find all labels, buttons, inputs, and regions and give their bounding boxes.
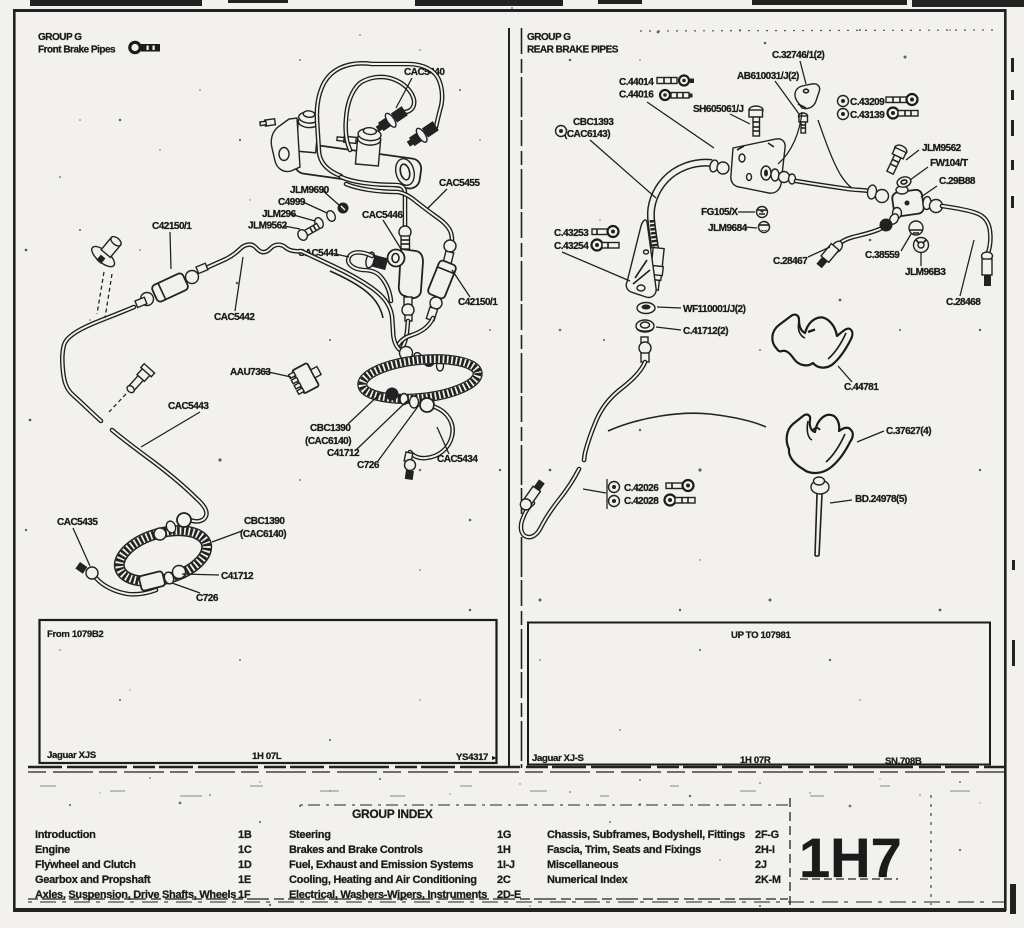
svg-text:Engine: Engine — [35, 844, 70, 856]
svg-text:Cooling, Heating and Air Condi: Cooling, Heating and Air Conditioning — [289, 874, 477, 886]
svg-text:1H 07R: 1H 07R — [740, 755, 771, 766]
svg-text:C.28467: C.28467 — [773, 256, 808, 267]
svg-text:2C: 2C — [497, 874, 511, 886]
svg-text:C42150/1: C42150/1 — [458, 297, 498, 308]
svg-text:Numerical Index: Numerical Index — [547, 874, 629, 886]
svg-text:1E: 1E — [238, 874, 251, 886]
svg-text:1H7: 1H7 — [799, 826, 902, 889]
svg-text:CBC1393: CBC1393 — [573, 117, 614, 128]
svg-text:2F-G: 2F-G — [755, 829, 779, 841]
svg-text:FG105/X: FG105/X — [701, 207, 738, 218]
svg-text:C.42028: C.42028 — [624, 496, 659, 507]
svg-text:CAC5434: CAC5434 — [437, 454, 478, 465]
svg-text:2H-I: 2H-I — [755, 844, 775, 856]
svg-text:2D-E: 2D-E — [497, 889, 521, 901]
svg-text:CAC5455: CAC5455 — [439, 178, 480, 189]
svg-text:Jaguar XJ-S: Jaguar XJ-S — [532, 753, 585, 764]
svg-text:Steering: Steering — [289, 829, 331, 841]
svg-text:From 1079B2: From 1079B2 — [47, 629, 103, 640]
svg-text:CBC1390: CBC1390 — [310, 423, 351, 434]
svg-text:Introduction: Introduction — [35, 829, 96, 841]
svg-text:C.44014: C.44014 — [619, 77, 654, 88]
svg-text:Chassis, Subframes, Bodyshell,: Chassis, Subframes, Bodyshell, Fittings — [547, 829, 745, 841]
svg-text:1F: 1F — [238, 889, 251, 901]
svg-text:C42150/1: C42150/1 — [152, 221, 192, 232]
svg-text:JLM96B3: JLM96B3 — [905, 267, 946, 278]
svg-text:SN.708B: SN.708B — [885, 756, 922, 767]
svg-text:Jaguar XJS: Jaguar XJS — [47, 750, 97, 761]
svg-text:C.44016: C.44016 — [619, 90, 654, 101]
svg-text:AB610031/J(2): AB610031/J(2) — [737, 71, 799, 82]
svg-text:C4999: C4999 — [278, 197, 306, 208]
svg-text:1C: 1C — [238, 844, 252, 856]
svg-text:GROUP INDEX: GROUP INDEX — [352, 807, 433, 821]
svg-text:C.43254: C.43254 — [554, 241, 589, 252]
svg-text:AAU7363: AAU7363 — [230, 367, 271, 378]
svg-text:Gearbox and Propshaft: Gearbox and Propshaft — [35, 874, 151, 886]
svg-text:C.43209: C.43209 — [850, 97, 885, 108]
svg-text:CAC5446: CAC5446 — [362, 210, 403, 221]
svg-text:FW104/T: FW104/T — [930, 158, 968, 169]
svg-text:C.43253: C.43253 — [554, 228, 589, 239]
svg-text:Electrical, Washers-Wipers, In: Electrical, Washers-Wipers, Instruments — [289, 889, 487, 901]
svg-text:JLM9684: JLM9684 — [708, 223, 748, 234]
svg-text:JLM9690: JLM9690 — [290, 185, 330, 196]
svg-text:2J: 2J — [755, 859, 767, 871]
svg-text:WF110001/J(2): WF110001/J(2) — [683, 304, 746, 315]
svg-text:JLM9562: JLM9562 — [922, 143, 962, 154]
svg-text:CAC5442: CAC5442 — [214, 312, 255, 323]
svg-text:C.43139: C.43139 — [850, 110, 885, 121]
svg-text:C726: C726 — [196, 593, 219, 604]
svg-text:Front Brake Pipes: Front Brake Pipes — [38, 45, 116, 56]
svg-text:C.28468: C.28468 — [946, 297, 981, 308]
svg-text:Fuel, Exhaust and Emission Sys: Fuel, Exhaust and Emission Systems — [289, 859, 473, 871]
svg-text:1G: 1G — [497, 829, 511, 841]
svg-text:C.37627(4): C.37627(4) — [886, 426, 931, 437]
svg-text:REAR BRAKE PIPES: REAR BRAKE PIPES — [527, 45, 619, 56]
svg-text:C.44781: C.44781 — [844, 382, 879, 393]
svg-text:(CAC6143): (CAC6143) — [564, 129, 610, 140]
svg-text:1I-J: 1I-J — [497, 859, 515, 871]
svg-text:JLM9562: JLM9562 — [248, 221, 288, 232]
svg-text:1H: 1H — [497, 844, 511, 856]
svg-text:GROUP G: GROUP G — [527, 32, 571, 43]
svg-text:Fascia, Trim, Seats and Fixing: Fascia, Trim, Seats and Fixings — [547, 844, 701, 856]
svg-text:C.41712(2): C.41712(2) — [683, 326, 728, 337]
svg-text:Brakes and Brake Controls: Brakes and Brake Controls — [289, 844, 423, 856]
svg-text:Miscellaneous: Miscellaneous — [547, 859, 618, 871]
svg-text:UP TO 107981: UP TO 107981 — [731, 630, 791, 641]
svg-text:BD.24978(5): BD.24978(5) — [855, 494, 907, 505]
svg-text:C.29B88: C.29B88 — [939, 176, 976, 187]
svg-text:(CAC6140): (CAC6140) — [305, 436, 351, 447]
svg-text:CBC1390: CBC1390 — [244, 516, 285, 527]
svg-text:SH605061/J: SH605061/J — [693, 104, 744, 115]
svg-text:1B: 1B — [238, 829, 252, 841]
svg-text:YS4317: YS4317 — [456, 752, 488, 763]
svg-text:GROUP G: GROUP G — [38, 32, 82, 43]
svg-text:(CAC6140): (CAC6140) — [240, 529, 286, 540]
svg-text:Axles, Suspension, Drive Shaft: Axles, Suspension, Drive Shafts, Wheels — [35, 889, 236, 901]
svg-text:C41712: C41712 — [327, 448, 360, 459]
svg-text:2K-M: 2K-M — [755, 874, 781, 886]
svg-text:1D: 1D — [238, 859, 252, 871]
svg-text:1H 07L: 1H 07L — [252, 751, 282, 762]
svg-text:C726: C726 — [357, 460, 380, 471]
svg-text:CAC5435: CAC5435 — [57, 517, 98, 528]
svg-text:C.38559: C.38559 — [865, 250, 900, 261]
svg-text:C.32746/1(2): C.32746/1(2) — [772, 50, 825, 61]
svg-text:CAC5443: CAC5443 — [168, 401, 209, 412]
svg-text:C.42026: C.42026 — [624, 483, 659, 494]
svg-text:C41712: C41712 — [221, 571, 254, 582]
